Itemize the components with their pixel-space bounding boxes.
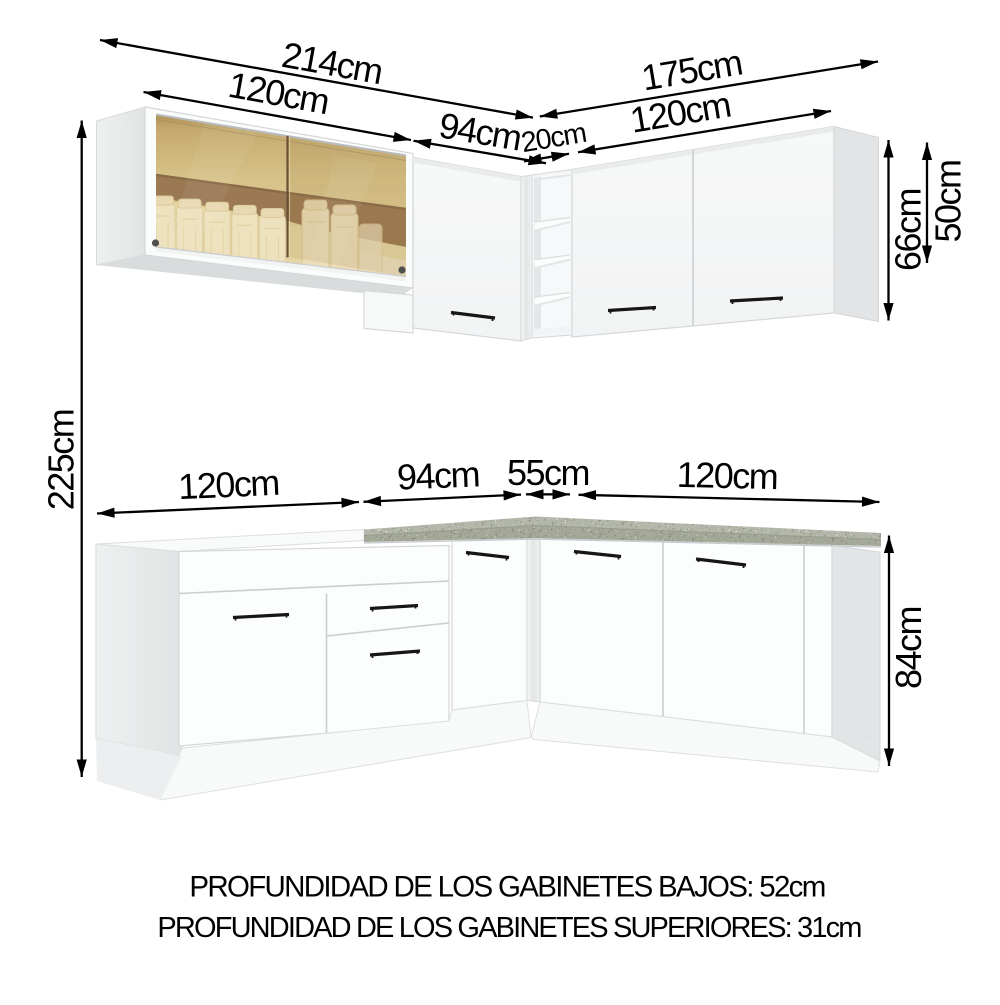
svg-text:225cm: 225cm — [41, 410, 82, 511]
svg-text:66cm: 66cm — [888, 189, 929, 271]
svg-text:PROFUNDIDAD DE LOS GABINETES B: PROFUNDIDAD DE LOS GABINETES BAJOS: 52cm — [189, 871, 824, 904]
svg-text:84cm: 84cm — [888, 607, 929, 689]
svg-text:55cm: 55cm — [507, 452, 589, 493]
svg-text:50cm: 50cm — [928, 160, 969, 242]
svg-text:120cm: 120cm — [177, 462, 279, 507]
svg-text:120cm: 120cm — [676, 454, 777, 497]
svg-text:PROFUNDIDAD DE LOS GABINETES S: PROFUNDIDAD DE LOS GABINETES SUPERIORES:… — [157, 912, 861, 944]
svg-text:94cm: 94cm — [396, 453, 480, 497]
